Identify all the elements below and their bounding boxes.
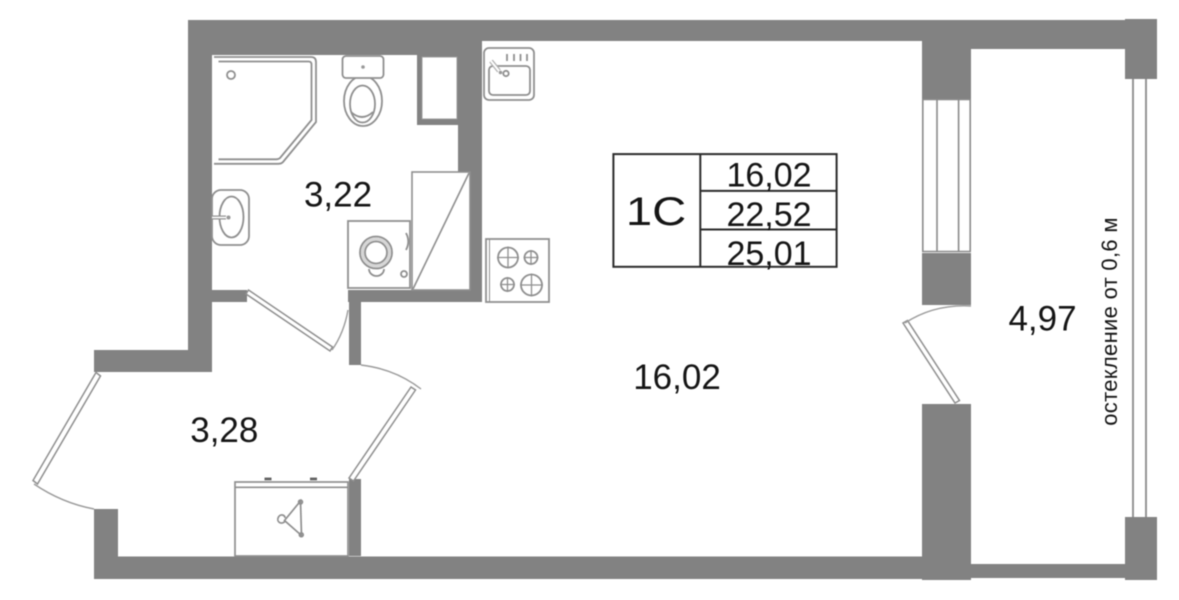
svg-text:3,28: 3,28 (190, 411, 258, 450)
svg-text:4,97: 4,97 (1008, 300, 1076, 339)
svg-text:3,22: 3,22 (304, 176, 372, 215)
svg-text:25,01: 25,01 (726, 235, 811, 273)
svg-text:22,52: 22,52 (726, 196, 811, 234)
svg-text:1C: 1C (626, 189, 686, 234)
svg-text:16,02: 16,02 (726, 156, 811, 194)
svg-text:16,02: 16,02 (633, 358, 721, 397)
svg-text:остекление от 0,6 м: остекление от 0,6 м (1097, 217, 1122, 426)
